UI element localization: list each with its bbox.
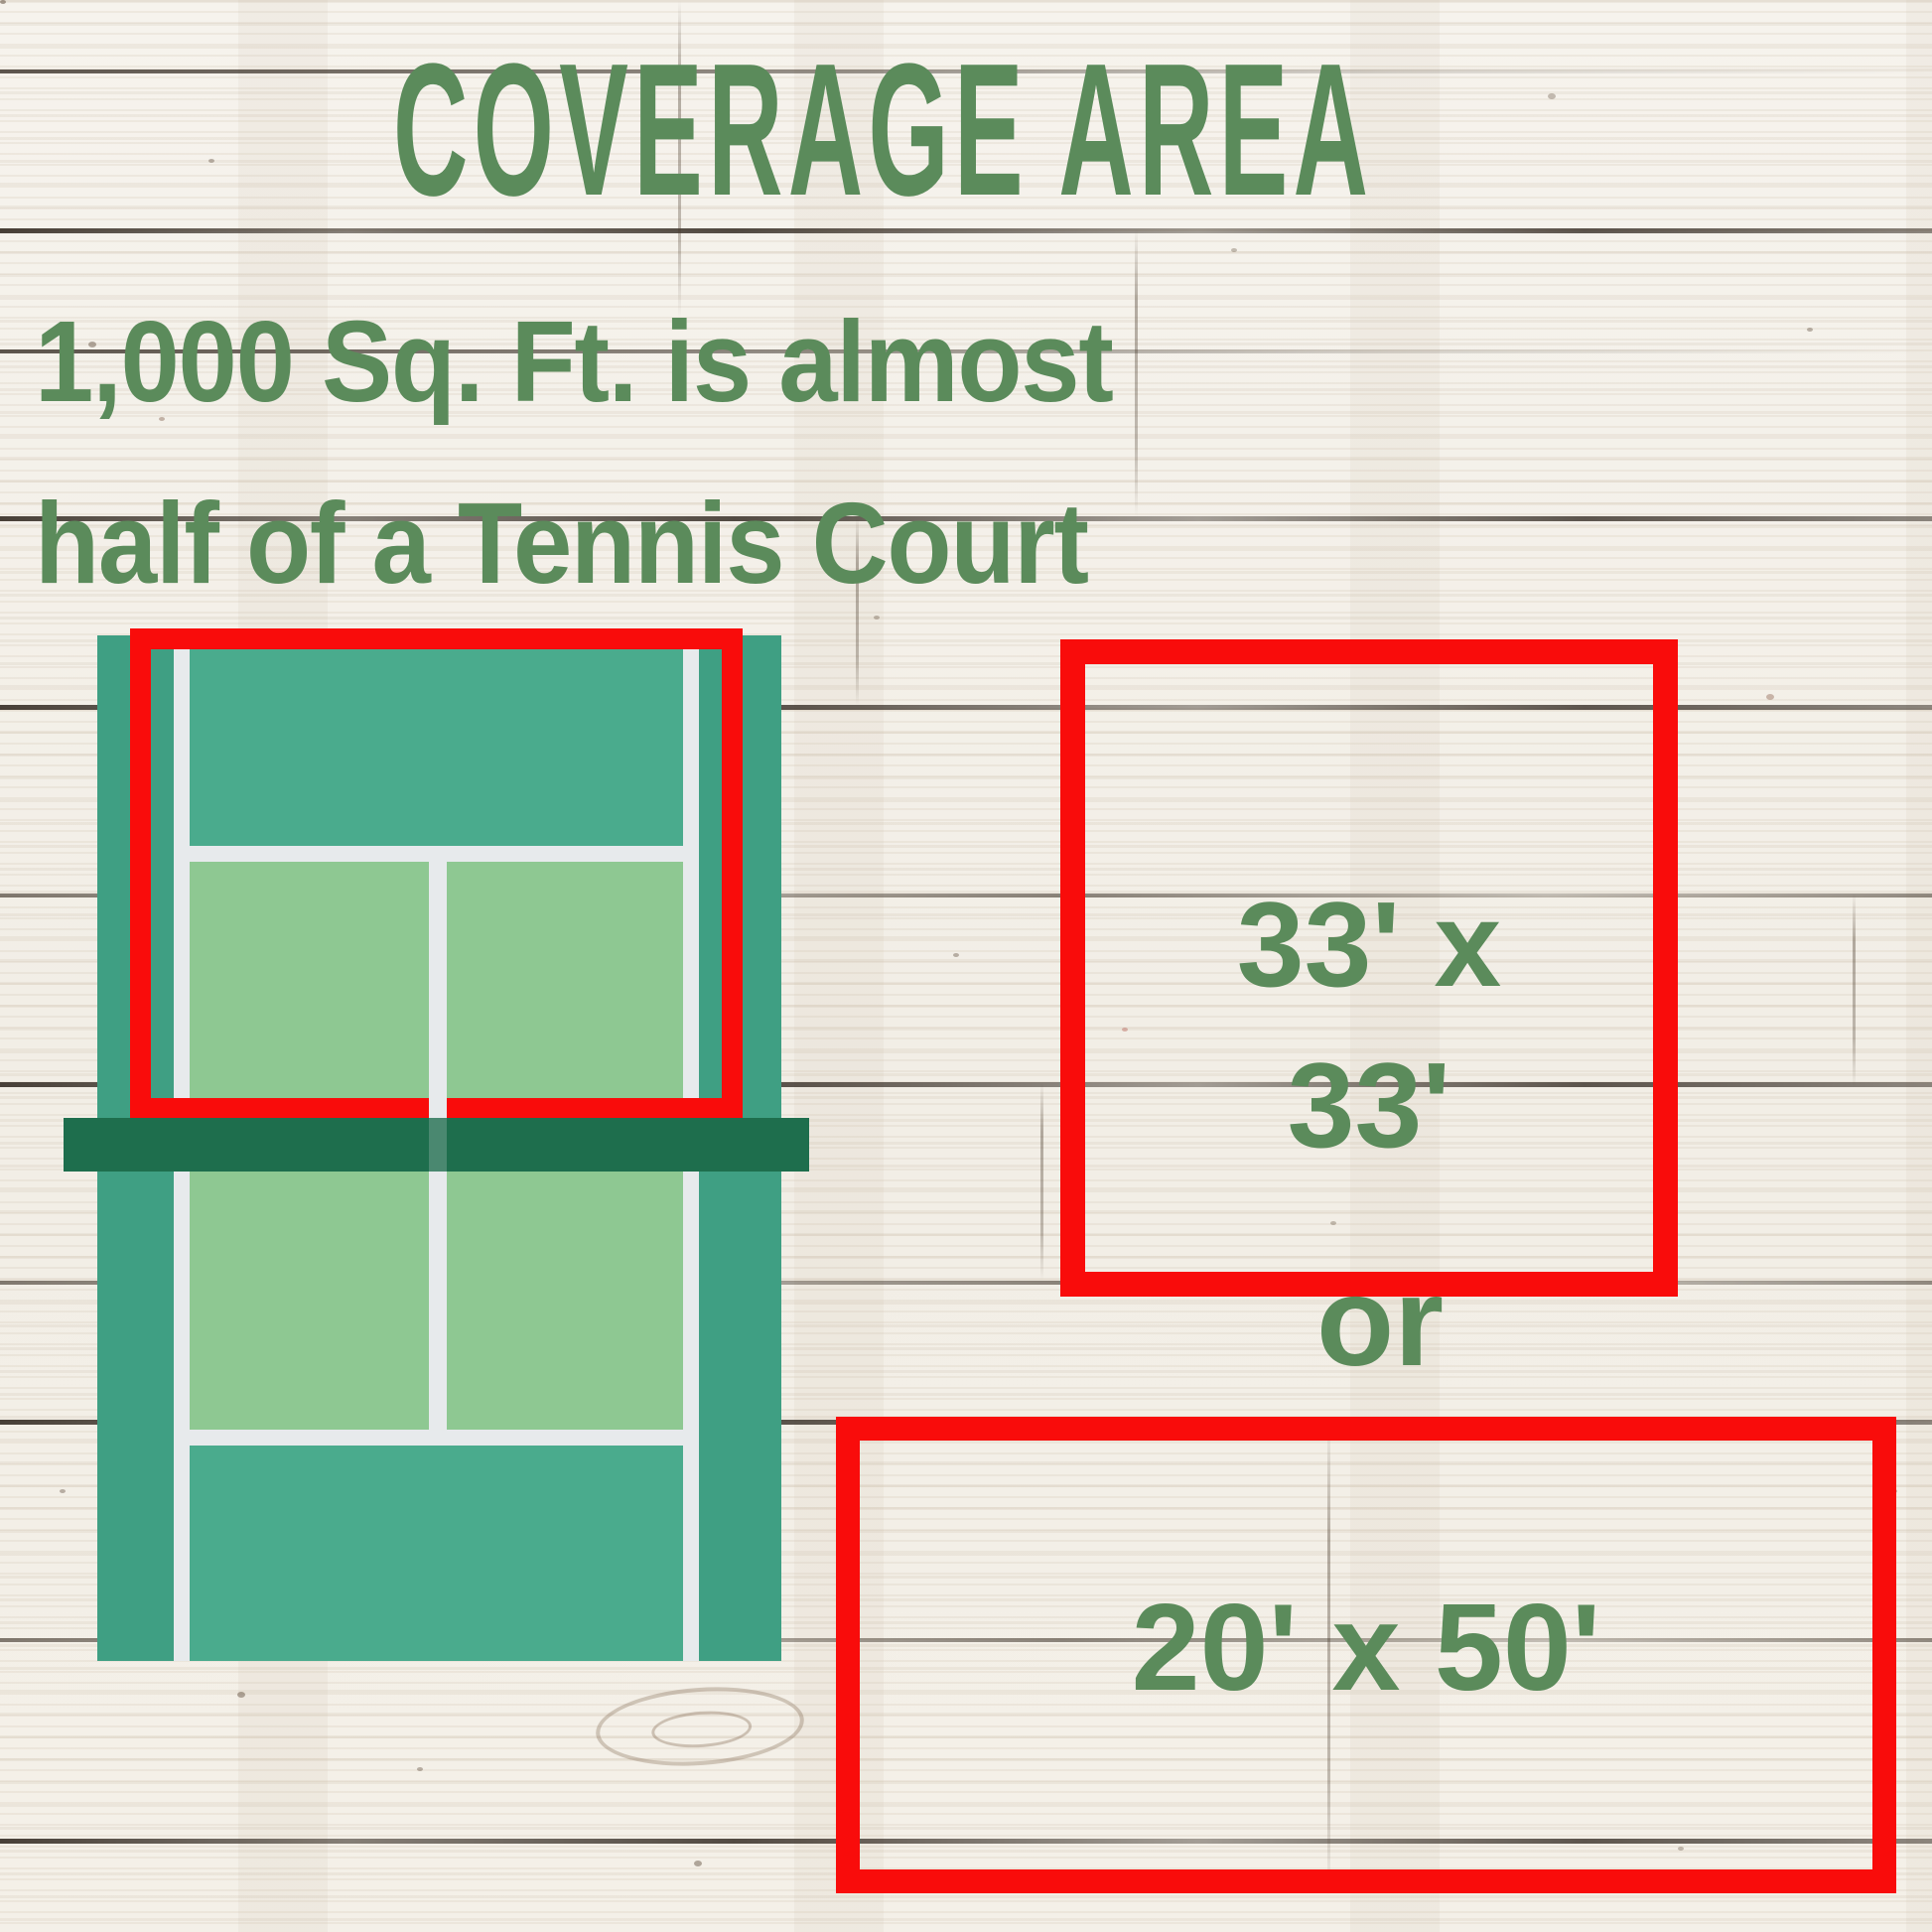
plank-joint bbox=[1853, 894, 1856, 1087]
wood-speckles bbox=[0, 0, 6, 4]
plank-joint bbox=[1040, 1082, 1043, 1281]
rectangle-dimension-label: 20' x 50' bbox=[836, 1581, 1896, 1716]
court-net-center-tint bbox=[429, 1118, 447, 1172]
square-dimension-line-1: 33' x bbox=[1060, 878, 1678, 1011]
description-line-1: 1,000 Sq. Ft. is almost bbox=[35, 293, 1113, 431]
or-separator: or bbox=[1092, 1253, 1668, 1393]
plank-joint bbox=[1135, 228, 1138, 516]
court-backcourt-bottom bbox=[190, 1446, 683, 1661]
page-title: COVERAGE AREA bbox=[393, 36, 1354, 224]
square-dimension-line-2: 33' bbox=[1060, 1038, 1678, 1172]
wood-knot bbox=[594, 1681, 807, 1772]
coverage-area-infographic: COVERAGE AREA 1,000 Sq. Ft. is almost ha… bbox=[0, 0, 1932, 1932]
description-line-2: half of a Tennis Court bbox=[35, 475, 1088, 613]
